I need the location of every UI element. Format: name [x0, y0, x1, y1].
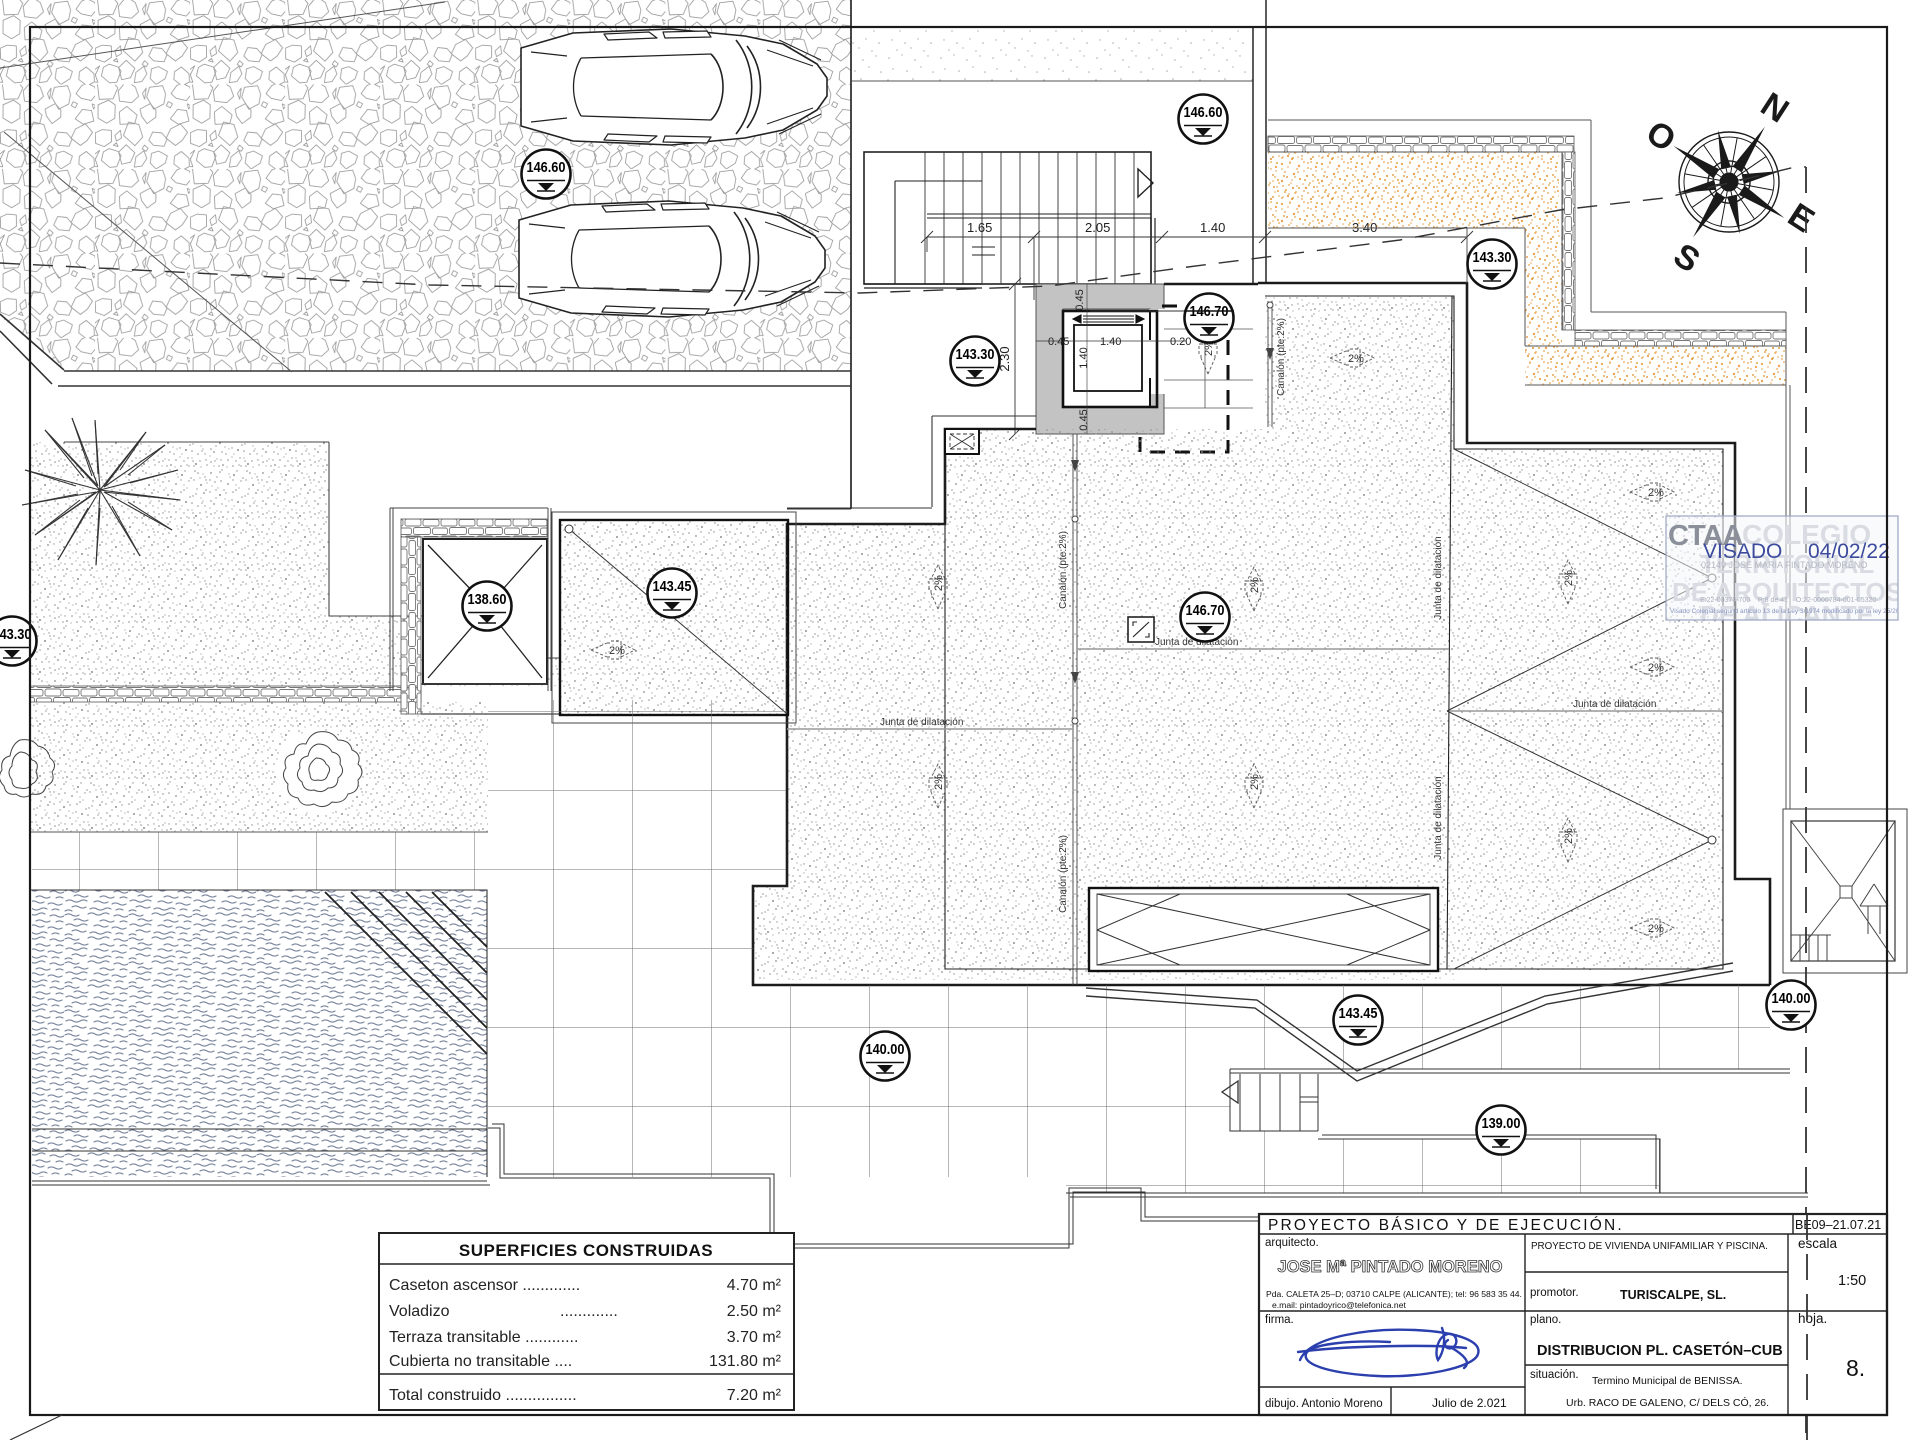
svg-text:0.45: 0.45	[1074, 289, 1086, 310]
svg-text:Caseton ascensor .............: Caseton ascensor .............	[389, 1277, 580, 1294]
svg-text:0.45: 0.45	[1048, 336, 1069, 348]
svg-text:PROYECTO BÁSICO Y DE EJECU: PROYECTO BÁSICO Y DE EJECUCIÓN.	[1268, 1217, 1624, 1234]
svg-text:promotor.: promotor.	[1530, 1287, 1579, 1299]
svg-text:Visado Colegial segund articul: Visado Colegial segund articulo 13 de la…	[1670, 608, 1907, 615]
svg-text:situación.: situación.	[1530, 1369, 1579, 1381]
svg-text:1:50: 1:50	[1838, 1273, 1866, 1289]
svg-text:140.00: 140.00	[866, 1041, 905, 1058]
svg-text:2%: 2%	[1249, 774, 1261, 790]
svg-text:0.45: 0.45	[1078, 409, 1090, 430]
svg-text:Cubierta no transitable ....: Cubierta no transitable ....	[389, 1353, 572, 1370]
svg-text:dibujo. Antonio Moreno: dibujo. Antonio Moreno	[1265, 1398, 1383, 1410]
svg-text:Junta de dilatación: Junta de dilatación	[1433, 536, 1444, 619]
svg-text:Total construido ............: Total construido ................	[389, 1387, 577, 1404]
svg-text:2%: 2%	[1648, 487, 1664, 499]
svg-text:.............: .............	[560, 1303, 618, 1320]
svg-text:2.05: 2.05	[1085, 220, 1110, 235]
svg-text:140.00: 140.00	[1772, 990, 1811, 1007]
svg-text:0.20: 0.20	[1170, 336, 1191, 348]
svg-text:hoja.: hoja.	[1798, 1311, 1827, 1326]
svg-text:DISTRIBUCION PL. CASETÓN–CUB: DISTRIBUCION PL. CASETÓN–CUB	[1537, 1341, 1783, 1359]
svg-text:Termino Municipal de BENISS: Termino Municipal de BENISSA.	[1592, 1375, 1743, 1387]
svg-text:2%: 2%	[1249, 577, 1261, 593]
svg-text:firma.: firma.	[1265, 1314, 1294, 1326]
svg-text:143.45: 143.45	[653, 578, 692, 595]
svg-text:131.80 m²: 131.80 m²	[709, 1353, 782, 1370]
svg-text:Julio de 2.021: Julio de 2.021	[1432, 1396, 1507, 1410]
svg-text:4.70 m²: 4.70 m²	[727, 1277, 782, 1294]
svg-text:2%: 2%	[1648, 923, 1664, 935]
svg-text:Junta de dilatación: Junta de dilatación	[1433, 776, 1444, 859]
svg-text:Junta de dilatación: Junta de dilatación	[880, 717, 963, 728]
svg-text:Terraza transitable .........: Terraza transitable ............	[389, 1329, 578, 1346]
svg-text:JOSE Mª PINTADO MORENO: JOSE Mª PINTADO MORENO	[1278, 1258, 1503, 1276]
svg-text:Voladizo: Voladizo	[389, 1303, 450, 1320]
svg-text:143.30: 143.30	[956, 346, 995, 363]
svg-text:plano.: plano.	[1530, 1314, 1561, 1326]
svg-text:1.40: 1.40	[1078, 347, 1090, 368]
svg-text:arquitecto.: arquitecto.	[1265, 1237, 1319, 1249]
svg-text:TURISCALPE, SL.: TURISCALPE, SL.	[1620, 1288, 1726, 1302]
svg-text:Pda. CALETA 25–D; 03710 CA: Pda. CALETA 25–D; 03710 CALPE (ALICANTE)…	[1266, 1289, 1522, 1299]
svg-text:Urb. RACO DE GALENO, C/ D: Urb. RACO DE GALENO, C/ DELS CÓ, 26.	[1566, 1396, 1769, 1409]
svg-text:02149 JOSE MARIA PINTADO MOREN: 02149 JOSE MARIA PINTADO MORENO	[1701, 560, 1867, 570]
svg-text:1.65: 1.65	[967, 220, 992, 235]
svg-text:Junta de dilatación: Junta de dilatación	[1573, 699, 1656, 710]
svg-text:138.60: 138.60	[468, 591, 507, 608]
svg-text:Canalón (pte:2%): Canalón (pte:2%)	[1058, 835, 1069, 913]
svg-text:e.mail: pintadoyrico@telefoni: e.mail: pintadoyrico@telefonica.net	[1272, 1300, 1406, 1310]
svg-text:146.60: 146.60	[527, 159, 566, 176]
svg-text:2.50 m²: 2.50 m²	[727, 1303, 782, 1320]
svg-text:2%: 2%	[609, 645, 625, 657]
svg-text:BE09–21.07.21: BE09–21.07.21	[1795, 1218, 1881, 1232]
svg-text:2%: 2%	[1348, 353, 1364, 365]
svg-text:2%: 2%	[1563, 570, 1575, 586]
svg-text:Canalón (pte:2%): Canalón (pte:2%)	[1276, 318, 1287, 396]
svg-text:SUPERFICIES CONSTRUIDAS: SUPERFICIES CONSTRUIDAS	[459, 1241, 713, 1260]
svg-text:143.30: 143.30	[0, 626, 32, 643]
svg-text:1.40: 1.40	[1200, 220, 1225, 235]
svg-text:2%: 2%	[933, 575, 945, 591]
svg-text:2%: 2%	[1648, 662, 1664, 674]
svg-text:143.30: 143.30	[1473, 249, 1512, 266]
svg-text:7.20 m²: 7.20 m²	[727, 1387, 782, 1404]
svg-text:146.60: 146.60	[1184, 104, 1223, 121]
svg-text:2%: 2%	[1563, 828, 1575, 844]
svg-text:Canalón (pte:2%): Canalón (pte:2%)	[1058, 531, 1069, 609]
svg-text:1.40: 1.40	[1100, 336, 1121, 348]
svg-text:E:22-00370-700 P:8 de 41: E:22-00370-700 P:8 de 41 O:22-0000784-00…	[1700, 597, 1876, 604]
svg-text:146.70: 146.70	[1186, 602, 1225, 619]
svg-text:143.45: 143.45	[1339, 1005, 1378, 1022]
svg-text:3.70 m²: 3.70 m²	[727, 1329, 782, 1346]
svg-text:PROYECTO DE VIVIENDA UNIFAM: PROYECTO DE VIVIENDA UNIFAMILIAR Y PISCI…	[1531, 1241, 1768, 1252]
svg-text:139.00: 139.00	[1482, 1115, 1521, 1132]
svg-text:2%: 2%	[933, 774, 945, 790]
svg-text:8.: 8.	[1846, 1355, 1865, 1381]
svg-text:escala: escala	[1798, 1236, 1838, 1251]
